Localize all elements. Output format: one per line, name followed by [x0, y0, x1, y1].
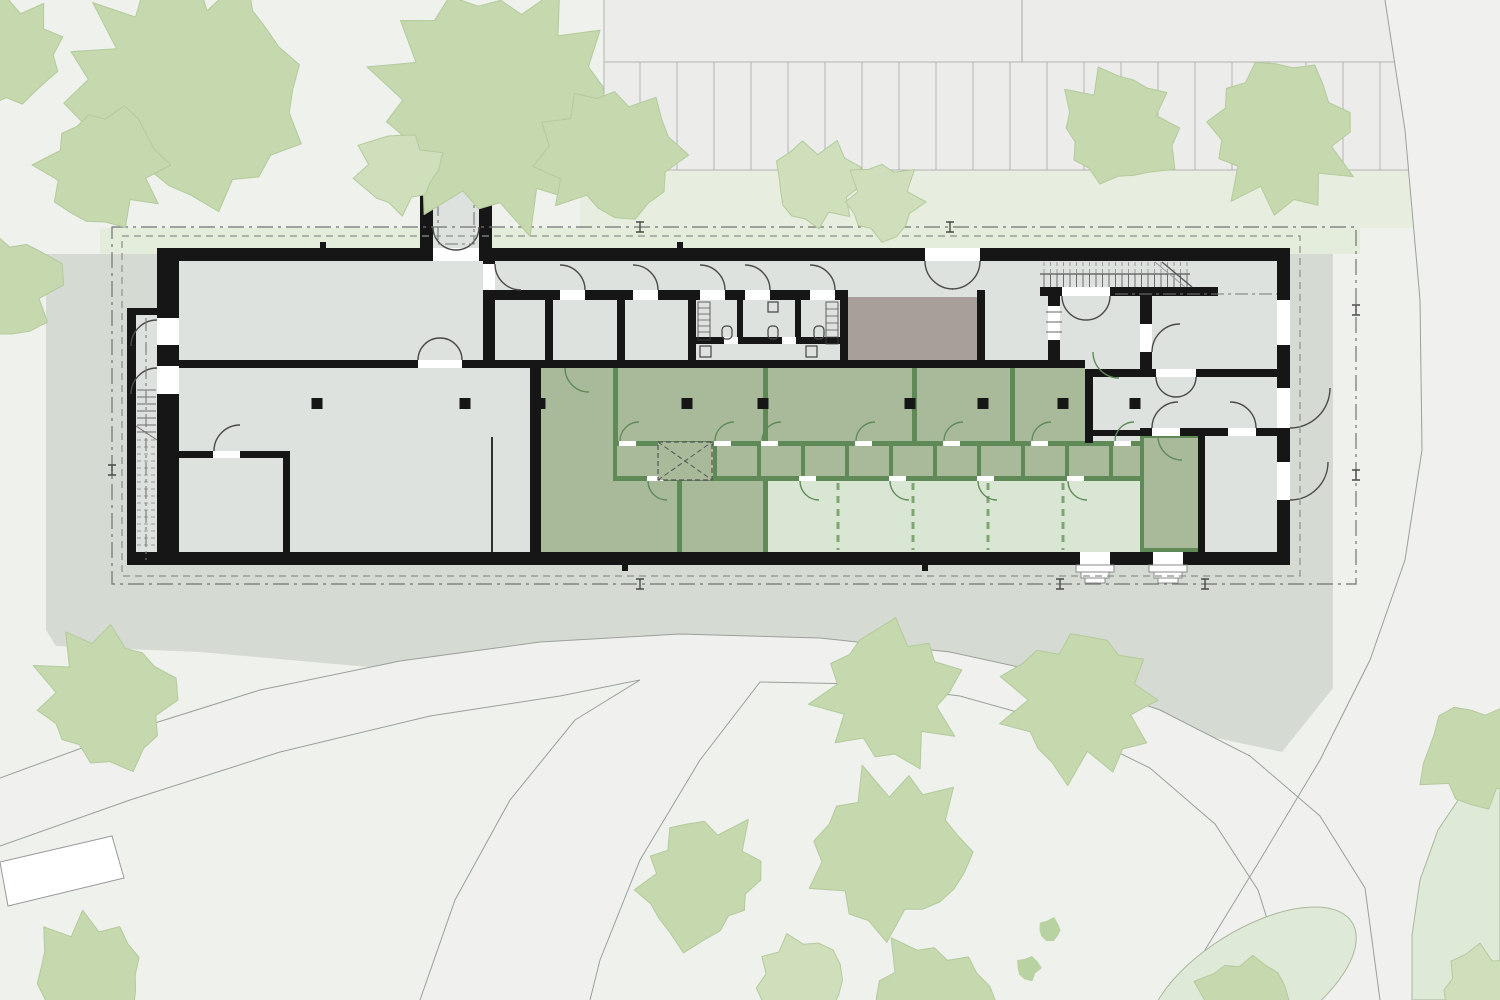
- stall-divider: [613, 368, 618, 441]
- cubicle-door-gap: [855, 441, 872, 446]
- cubicle-door-gap: [1114, 441, 1131, 446]
- cubicle-divider: [889, 441, 893, 481]
- column: [535, 398, 546, 409]
- run-rooms-south: [763, 481, 1140, 552]
- cubicle-divider: [1065, 441, 1069, 481]
- cubicle-door-gap: [714, 441, 731, 446]
- cubicle-divider: [757, 441, 761, 481]
- cubicle-door-gap: [619, 441, 636, 446]
- annex-wall-cap: [127, 308, 157, 315]
- column: [1058, 398, 1069, 409]
- north-entry-opening: [925, 248, 980, 261]
- column: [758, 398, 769, 409]
- site-plan: [0, 0, 1500, 1000]
- east-window: [1277, 300, 1290, 345]
- wall-corridor: [495, 290, 848, 300]
- cubicle-door-gap: [799, 476, 816, 481]
- lawn-band-below-parking: [580, 170, 1475, 228]
- cubicle-divider: [613, 441, 617, 481]
- cubicle-door-gap: [1031, 441, 1048, 446]
- column: [978, 398, 989, 409]
- cubicle-divider: [801, 441, 805, 481]
- cubicle-door-gap: [977, 476, 994, 481]
- wall-stallzone-north: [179, 360, 1085, 368]
- cubicle-divider: [713, 441, 717, 481]
- south-room-divider-b: [763, 481, 768, 552]
- annex-wall-outer: [127, 308, 136, 565]
- wall-hall-east: [530, 368, 541, 552]
- south-room-divider-a: [677, 481, 682, 552]
- toilet-mid-wall: [696, 337, 840, 344]
- east-door-a: [1277, 388, 1290, 428]
- wall-west: [157, 261, 179, 565]
- south-exit-a: [1080, 552, 1110, 565]
- column: [460, 398, 471, 409]
- stall-room-south-a: [613, 481, 763, 552]
- cubicle-door-gap: [1067, 476, 1084, 481]
- sliding-window: [1048, 306, 1060, 340]
- cubicle-divider: [1021, 441, 1025, 481]
- wall-north: [157, 248, 1290, 261]
- column: [682, 398, 693, 409]
- cubicle-door-gap: [889, 476, 906, 481]
- feed-box: [658, 442, 712, 480]
- storeroom-wall-e: [283, 451, 290, 552]
- stall-divider: [1010, 368, 1015, 441]
- column: [312, 398, 323, 409]
- cubicle-door-gap: [943, 441, 960, 446]
- service-room: [848, 297, 977, 365]
- green-room-east: [1140, 436, 1198, 552]
- cubicle-divider: [977, 441, 981, 481]
- stair-hall-door-opening: [1062, 287, 1110, 296]
- column: [905, 398, 916, 409]
- south-exit-b: [1153, 552, 1183, 565]
- cubicle-divider: [845, 441, 849, 481]
- stall-room-tall: [541, 368, 613, 552]
- east-door-b: [1277, 462, 1290, 500]
- cubicle-divider: [933, 441, 937, 481]
- parking-lot: [604, 0, 1474, 170]
- column: [1130, 398, 1141, 409]
- wall-south: [131, 552, 1290, 565]
- cubicle-divider: [1109, 441, 1113, 481]
- cubicle-door-gap: [761, 441, 778, 446]
